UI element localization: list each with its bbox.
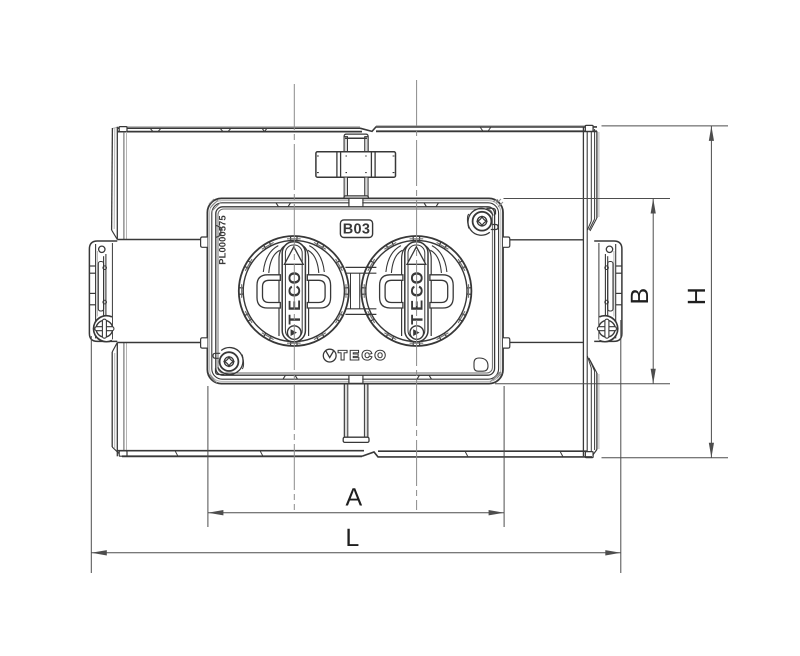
- svg-text:B03: B03: [343, 222, 371, 238]
- svg-text:C: C: [408, 285, 426, 297]
- svg-text:TECO: TECO: [339, 349, 389, 363]
- svg-text:PL0000575: PL0000575: [217, 215, 228, 264]
- svg-text:H: H: [683, 287, 711, 305]
- svg-text:T: T: [408, 315, 426, 325]
- svg-text:E: E: [408, 300, 426, 311]
- svg-text:B: B: [626, 288, 654, 305]
- svg-text:A: A: [345, 484, 362, 512]
- svg-text:O: O: [408, 271, 426, 284]
- svg-text:L: L: [345, 524, 359, 552]
